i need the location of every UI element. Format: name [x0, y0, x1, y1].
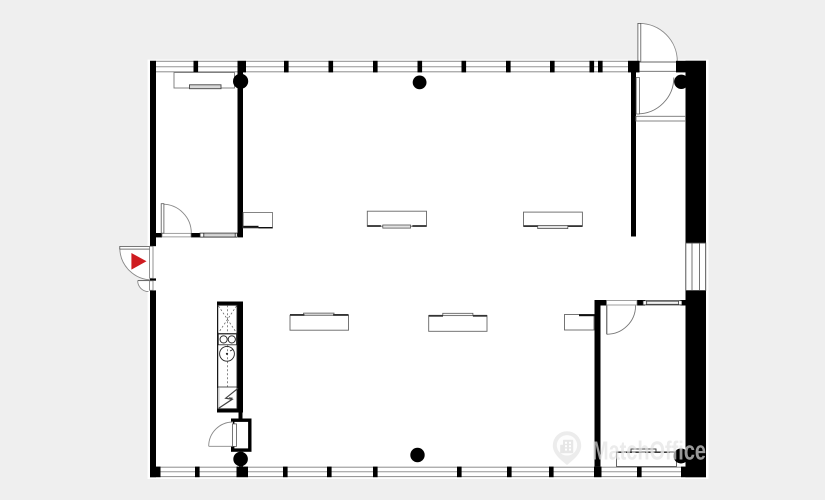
svg-text:MatchOffice: MatchOffice [592, 438, 706, 466]
